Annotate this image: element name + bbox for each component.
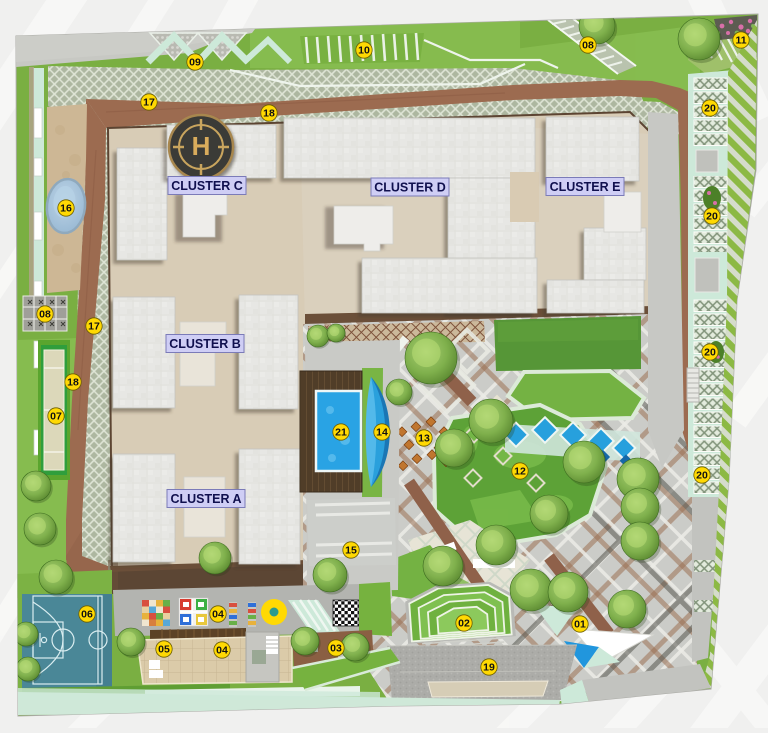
svg-text:20: 20 <box>704 103 716 115</box>
svg-text:06: 06 <box>81 609 93 621</box>
svg-text:14: 14 <box>376 427 388 439</box>
svg-text:13: 13 <box>418 433 430 445</box>
svg-text:CLUSTER C: CLUSTER C <box>171 179 243 193</box>
svg-text:21: 21 <box>335 427 347 439</box>
svg-text:19: 19 <box>483 662 495 674</box>
svg-text:01: 01 <box>574 619 586 631</box>
svg-text:20: 20 <box>706 211 718 223</box>
svg-text:12: 12 <box>514 466 526 478</box>
svg-text:15: 15 <box>345 545 357 557</box>
svg-text:07: 07 <box>50 411 62 423</box>
svg-text:20: 20 <box>704 347 716 359</box>
svg-text:08: 08 <box>582 40 594 52</box>
svg-text:18: 18 <box>263 108 275 120</box>
svg-text:09: 09 <box>189 57 201 69</box>
svg-text:17: 17 <box>88 321 100 333</box>
svg-text:10: 10 <box>358 45 370 57</box>
svg-text:CLUSTER E: CLUSTER E <box>550 180 621 194</box>
svg-text:17: 17 <box>143 97 155 109</box>
svg-text:CLUSTER A: CLUSTER A <box>170 492 241 506</box>
svg-text:CLUSTER D: CLUSTER D <box>374 181 446 195</box>
svg-text:03: 03 <box>330 643 342 655</box>
svg-text:04: 04 <box>212 609 224 621</box>
svg-text:H: H <box>192 131 211 161</box>
svg-text:08: 08 <box>39 309 51 321</box>
svg-text:04: 04 <box>216 645 228 657</box>
svg-text:02: 02 <box>458 618 470 630</box>
svg-text:05: 05 <box>158 644 170 656</box>
svg-text:20: 20 <box>696 470 708 482</box>
svg-text:16: 16 <box>60 203 72 215</box>
svg-text:11: 11 <box>735 35 746 47</box>
svg-text:18: 18 <box>67 377 79 389</box>
svg-text:CLUSTER B: CLUSTER B <box>169 337 241 351</box>
